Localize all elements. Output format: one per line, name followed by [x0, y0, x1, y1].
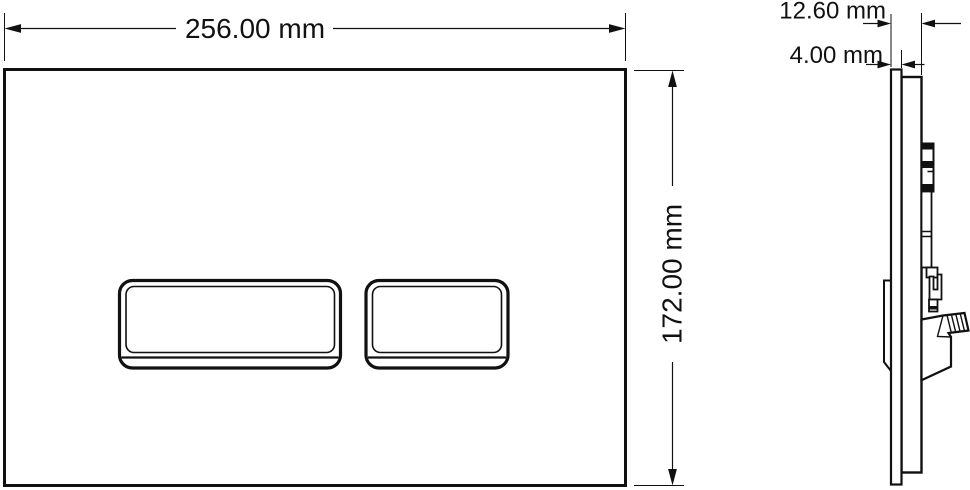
width-arrow-left: [5, 24, 22, 33]
drawing-canvas: 256.00 mm 172.00 mm: [0, 0, 970, 490]
front-view: [5, 70, 626, 486]
thickness-dimension: 4.00 mm: [790, 42, 925, 69]
side-clip-band: [922, 144, 934, 150]
height-dimension: 172.00 mm: [634, 71, 688, 486]
height-dimension-label: 172.00 mm: [657, 204, 688, 344]
width-dimension: 256.00 mm: [5, 13, 626, 61]
side-housing: [902, 77, 922, 473]
side-lever: [922, 313, 969, 380]
side-guide-rail: [922, 192, 932, 268]
flush-button-large: [120, 281, 341, 369]
depth-arrow-right: [922, 20, 936, 28]
flush-button-small-outer: [366, 281, 508, 369]
side-clip-band: [922, 161, 934, 168]
thickness-arrow-right: [902, 61, 916, 69]
side-front-plate: [891, 70, 902, 485]
side-hook-foot-band: [929, 306, 938, 310]
side-hook-foot: [929, 300, 938, 312]
height-arrow-bottom: [668, 469, 677, 486]
height-arrow-top: [668, 71, 677, 88]
flush-button-small: [366, 281, 508, 369]
width-arrow-right: [609, 24, 626, 33]
side-view: [884, 70, 969, 485]
depth-dimension-label: 12.60 mm: [779, 0, 886, 25]
thickness-dimension-label: 4.00 mm: [790, 42, 883, 69]
plate-outline: [5, 70, 626, 486]
side-mechanism: [922, 144, 969, 381]
side-clip-band: [922, 184, 934, 191]
flush-button-large-outer: [120, 281, 341, 369]
technical-drawing: 256.00 mm 172.00 mm: [0, 0, 970, 490]
width-dimension-label: 256.00 mm: [185, 13, 325, 44]
